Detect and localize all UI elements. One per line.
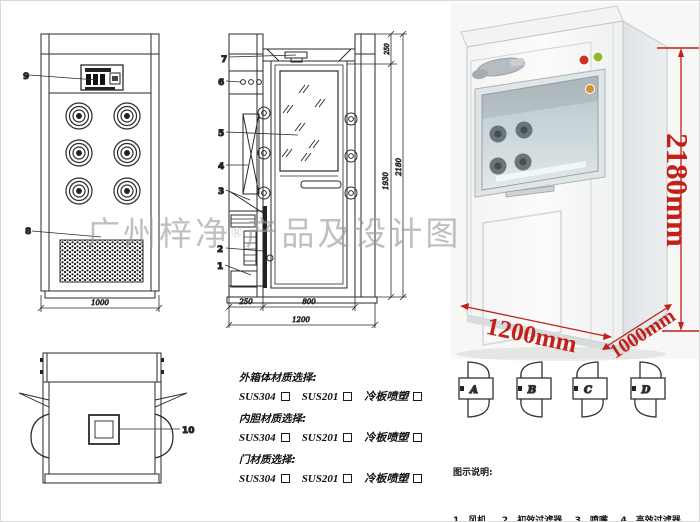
section-label-5: 5	[218, 129, 224, 139]
checkbox-inner-sus201	[343, 433, 352, 442]
section-label-3: 3	[218, 187, 224, 197]
svg-text:C: C	[584, 385, 592, 396]
checkbox-inner-sus304	[281, 433, 290, 442]
door-option-a: A	[459, 362, 493, 417]
left-door-arc	[31, 414, 49, 458]
red-indicator-light	[579, 55, 589, 65]
option-sus201: SUS201	[302, 473, 339, 485]
section-label-1: 1	[217, 262, 223, 272]
option-coldplate: 冷板喷塑	[364, 432, 408, 444]
checkbox-outer-sus304	[281, 392, 290, 401]
option-sus304: SUS304	[239, 391, 276, 403]
door-material-title: 门材质选择:	[239, 452, 439, 467]
front-view-drawing: 9 8 1000	[23, 34, 162, 312]
door-material-options: SUS304SUS201冷板喷塑	[239, 470, 439, 486]
checkbox-door-coldplate	[413, 474, 422, 483]
legend-title: 图示说明:	[453, 465, 700, 481]
legend: 图示说明: 1、风机 2、初效过滤器 3、喷嘴 4、高效过滤器 5、钢化玻璃 6…	[453, 433, 700, 522]
door-swing-diagrams: A B C D	[459, 362, 665, 417]
nozzles	[66, 103, 140, 204]
door-option-d: D	[631, 362, 665, 417]
door-hinges	[258, 107, 270, 199]
svg-text:1000: 1000	[91, 299, 109, 307]
door-option-b: B	[517, 362, 551, 417]
right-door-arc	[155, 414, 173, 458]
section-label-4: 4	[218, 162, 224, 172]
glass-hatch	[282, 85, 325, 161]
checkbox-inner-coldplate	[413, 433, 422, 442]
front-label-9: 9	[23, 72, 29, 82]
inner-material-options: SUS304SUS201冷板喷塑	[239, 429, 439, 445]
option-coldplate: 冷板喷塑	[364, 391, 408, 403]
svg-text:800: 800	[302, 298, 316, 306]
option-coldplate: 冷板喷塑	[364, 473, 408, 485]
top-view-drawing: 10	[19, 353, 195, 483]
svg-text:2180: 2180	[395, 158, 403, 177]
outer-material-title: 外箱体材质选择:	[239, 370, 439, 385]
inner-material-title: 内胆材质选择:	[239, 411, 439, 426]
door-handle	[301, 181, 341, 188]
right-door-wing	[155, 393, 187, 407]
svg-text:1200: 1200	[292, 316, 310, 324]
product-photo: 2180mm 1200mm 1000mm	[451, 3, 700, 363]
top-view-label-10: 10	[182, 426, 195, 436]
legend-line-1: 1、风机 2、初效过滤器 3、喷嘴 4、高效过滤器	[453, 513, 700, 522]
side-nozzles	[241, 80, 262, 85]
svg-text:D: D	[641, 385, 651, 396]
option-sus304: SUS304	[239, 473, 276, 485]
front-label-8: 8	[25, 227, 31, 237]
option-sus304: SUS304	[239, 432, 276, 444]
section-height-dimensions: 250 1930 2180	[347, 31, 407, 300]
svg-text:250: 250	[384, 43, 391, 56]
material-selection-form: 外箱体材质选择: SUS304SUS201冷板喷塑 内胆材质选择: SUS304…	[239, 363, 439, 486]
checkbox-door-sus201	[343, 474, 352, 483]
ceiling-lamp	[89, 415, 119, 444]
left-door-wing	[19, 393, 49, 407]
svg-text:A: A	[469, 385, 478, 396]
green-indicator-light	[593, 52, 603, 62]
section-label-6: 6	[218, 78, 224, 88]
option-sus201: SUS201	[302, 391, 339, 403]
checkbox-door-sus304	[281, 474, 290, 483]
control-panel	[81, 65, 123, 90]
svg-text:B: B	[527, 385, 536, 396]
spec-sheet-page: 9 8 1000	[0, 0, 700, 522]
door-option-c: C	[573, 362, 607, 417]
section-width-dimensions: 250 800 1200	[226, 297, 378, 328]
section-label-7: 7	[221, 55, 227, 65]
section-label-2: 2	[217, 245, 223, 255]
checkbox-outer-sus201	[343, 392, 352, 401]
svg-text:250: 250	[238, 298, 253, 306]
orange-indicator-light	[586, 85, 595, 94]
option-sus201: SUS201	[302, 432, 339, 444]
section-view-drawing: 7 6 5 4 3 2 1 250 1930 2180	[217, 31, 407, 328]
lower-unit	[231, 206, 273, 288]
photo-height-dim: 2180mm	[660, 133, 695, 247]
svg-text:1930: 1930	[382, 172, 390, 190]
exhaust-grille	[60, 240, 143, 282]
checkbox-outer-coldplate	[413, 392, 422, 401]
outer-material-options: SUS304SUS201冷板喷塑	[239, 388, 439, 404]
